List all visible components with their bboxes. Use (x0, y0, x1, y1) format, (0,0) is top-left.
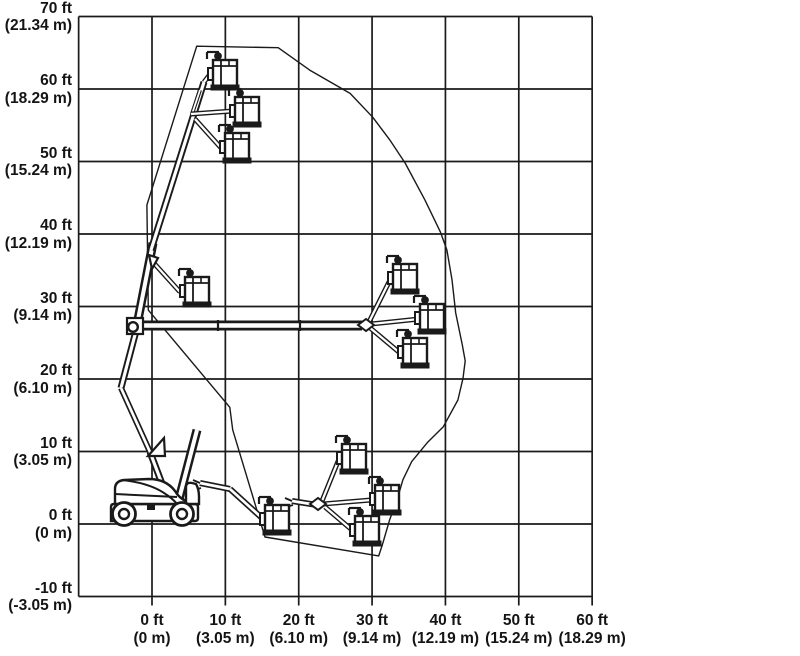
y-axis-label: 70 ft(21.34 m) (0, 0, 72, 35)
boom-section-inner (369, 327, 400, 353)
boom-section-inner (152, 261, 180, 292)
boom-break-mark (285, 498, 292, 501)
wheel-hub (177, 509, 187, 519)
boom-section-inner (322, 459, 339, 501)
x-axis-label: 60 ft(18.29 m) (537, 612, 647, 647)
reach-diagram-svg (0, 0, 800, 656)
boom-section-inner (230, 489, 262, 518)
axle-mark (147, 504, 155, 510)
platform-basket (387, 256, 419, 294)
boom-section-inner (121, 388, 150, 452)
y-axis-label: 10 ft(3.05 m) (0, 435, 72, 470)
y-axis-label: 30 ft(9.14 m) (0, 290, 72, 325)
chassis-cowl (115, 479, 186, 504)
platform-basket (259, 497, 291, 535)
y-axis-label: 50 ft(15.24 m) (0, 145, 72, 180)
y-axis-label: 60 ft(18.29 m) (0, 72, 72, 107)
platform-basket (336, 436, 368, 474)
platform-basket (207, 52, 239, 90)
platform-basket (219, 125, 251, 163)
platform-basket (229, 89, 261, 127)
boom-section-inner (195, 119, 222, 149)
platform-basket (179, 269, 211, 307)
reach-envelope-figure: 70 ft(21.34 m)60 ft(18.29 m)50 ft(15.24 … (0, 0, 800, 656)
turret (186, 483, 199, 504)
y-axis-label: 20 ft(6.10 m) (0, 362, 72, 397)
y-axis-label: -10 ft(-3.05 m) (0, 580, 72, 615)
platform-basket (397, 330, 429, 368)
y-axis-label: 40 ft(12.19 m) (0, 217, 72, 252)
platform-basket (414, 296, 446, 334)
y-axis-label: 0 ft(0 m) (0, 507, 72, 542)
platform-basket (369, 477, 401, 515)
wheel-hub (119, 509, 129, 519)
elbow-joint (128, 322, 138, 332)
